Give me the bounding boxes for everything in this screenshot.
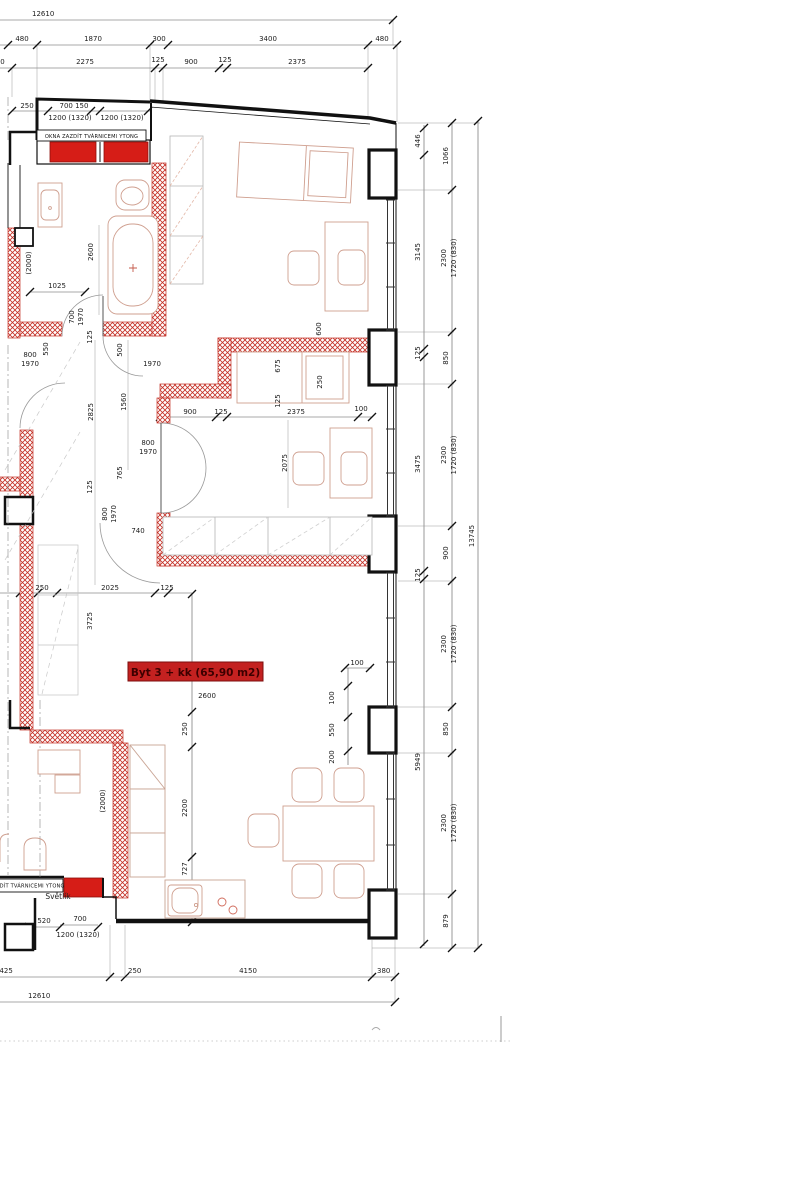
chair — [292, 864, 322, 898]
dim-label: 2200 — [181, 799, 189, 817]
dim-label: 1720 (830) — [450, 238, 458, 277]
dim-label: (2000) — [99, 789, 107, 813]
dim-label: 250 — [0, 58, 5, 66]
dim-label: 550 — [42, 342, 50, 355]
dim-label: 700 — [68, 310, 76, 323]
dim-label: 520 — [37, 917, 50, 925]
dim-label: 1720 (830) — [450, 803, 458, 842]
dim-label: 700 150 — [60, 102, 89, 110]
dim-label: 3475 — [414, 455, 422, 473]
dim-label: 300 — [152, 35, 165, 43]
dim-label: 1970 — [139, 448, 157, 456]
dim-label: 600 — [315, 322, 323, 335]
note-okna-bottom: OKNA ZAZDÍT TVÁRNICEMI YTONG — [0, 883, 65, 890]
dim-label: 2375 — [287, 408, 305, 416]
dim-label: 100 — [354, 405, 367, 413]
closet-bedroom2 — [163, 517, 372, 555]
chair — [248, 814, 279, 847]
dim-label: 250 — [20, 102, 33, 110]
dining-table — [283, 806, 374, 861]
note-okna-top: OKNA ZAZDÍT TVÁRNICEMI YTONG — [45, 133, 138, 140]
closet-corridor — [38, 545, 78, 695]
dim-label: 1970 — [77, 308, 85, 326]
dim-label: 125 — [214, 408, 227, 416]
dim-label: 125 — [414, 568, 422, 581]
dim-label: 2375 — [288, 58, 306, 66]
dim-label: 480 — [375, 35, 388, 43]
dim-label: 2025 — [101, 584, 119, 592]
dim-label: 5949 — [414, 753, 422, 771]
dim-label: 125 — [86, 480, 94, 493]
apartment-label: Byt 3 + kk (65,90 m2) — [131, 667, 260, 679]
dim-label: 100 — [328, 691, 336, 704]
dim-label: 2075 — [281, 454, 289, 472]
dim-label: 900 — [184, 58, 197, 66]
dim-label: 4150 — [239, 967, 257, 975]
dim-label: 700 — [73, 915, 86, 923]
dim-label: 125 — [274, 394, 282, 407]
dim-label: 12610 — [32, 10, 54, 18]
dim-label: 480 — [15, 35, 28, 43]
dim-label: 800 — [141, 439, 154, 447]
dim-label: 1970 — [110, 505, 118, 523]
dim-label: 250 — [316, 375, 324, 388]
dim-label: 250 — [35, 584, 48, 592]
dim-label: 1720 (830) — [450, 435, 458, 474]
floor-plan: OKNA ZAZDÍT TVÁRNICEMI YTONG OKNA ZAZDÍT… — [0, 0, 787, 1200]
dim-label: 1970 — [21, 360, 39, 368]
dim-label: 765 — [116, 466, 124, 479]
dim-label: (2000) — [25, 251, 33, 275]
dim-label: 3425 — [0, 967, 13, 975]
dim-label: 2300 — [440, 814, 448, 832]
dim-label: 850 — [442, 351, 450, 364]
dim-label: 380 — [377, 967, 390, 975]
pillow — [306, 356, 343, 399]
dim-label: 3145 — [414, 243, 422, 261]
dim-label: 2600 — [87, 243, 95, 261]
dim-label: 800 — [23, 351, 36, 359]
dim-label: 1560 — [120, 393, 128, 411]
svetlik-label: Světlík — [45, 892, 71, 901]
dim-label: 1200 (1320) — [56, 931, 100, 939]
chair — [293, 452, 324, 485]
dim-label: 446 — [414, 134, 422, 148]
dim-label: 675 — [274, 359, 282, 372]
dim-label: 800 — [101, 507, 109, 520]
chair — [338, 250, 365, 285]
dim-label: 125 — [86, 330, 94, 343]
dim-label: 2300 — [440, 635, 448, 653]
dim-label: 125 — [218, 56, 231, 64]
dim-label: 12610 — [28, 992, 50, 1000]
dim-label: 1200 (1320) — [100, 114, 144, 122]
dim-label: 1970 — [143, 360, 161, 368]
dim-label: 550 — [328, 723, 336, 736]
dim-label: 2300 — [440, 446, 448, 464]
dim-label: 740 — [131, 527, 144, 535]
chair — [334, 768, 364, 802]
dim-label: 1066 — [442, 147, 450, 165]
chair — [288, 251, 319, 285]
dim-label: 500 — [116, 343, 124, 356]
dim-label: 727 — [181, 862, 189, 875]
dim-label: 125 — [160, 584, 173, 592]
dim-label: 3400 — [259, 35, 277, 43]
dim-label: 125 — [151, 56, 164, 64]
dim-label: 2825 — [87, 403, 95, 421]
cut-line — [0, 1016, 510, 1042]
dim-label: 900 — [183, 408, 196, 416]
closet-bedroom1 — [170, 136, 203, 284]
dim-label: 2600 — [198, 692, 216, 700]
dim-label: 200 — [328, 750, 336, 763]
dim-label: 900 — [442, 546, 450, 559]
floor-plan-page: OKNA ZAZDÍT TVÁRNICEMI YTONG OKNA ZAZDÍT… — [0, 0, 787, 1200]
dim-label: 13745 — [468, 525, 476, 547]
bed-1 — [237, 142, 354, 203]
dim-label: 100 — [350, 659, 363, 667]
dim-label: 1200 (1320) — [48, 114, 92, 122]
dim-label: 879 — [442, 914, 450, 927]
dim-label: 2300 — [440, 249, 448, 267]
dim-label: 1025 — [48, 282, 66, 290]
dim-label: 125 — [414, 346, 422, 359]
chair — [292, 768, 322, 802]
dim-label: 1720 (830) — [450, 624, 458, 663]
sofa — [38, 750, 80, 774]
toilet-2 — [24, 838, 46, 870]
chair — [341, 452, 367, 485]
dim-label: 250 — [181, 722, 189, 735]
dim-label: 2275 — [76, 58, 94, 66]
dim-label: 250 — [128, 967, 141, 975]
dim-label: 3725 — [86, 612, 94, 630]
chair — [334, 864, 364, 898]
dim-label: 1870 — [84, 35, 102, 43]
dim-label: 850 — [442, 722, 450, 735]
